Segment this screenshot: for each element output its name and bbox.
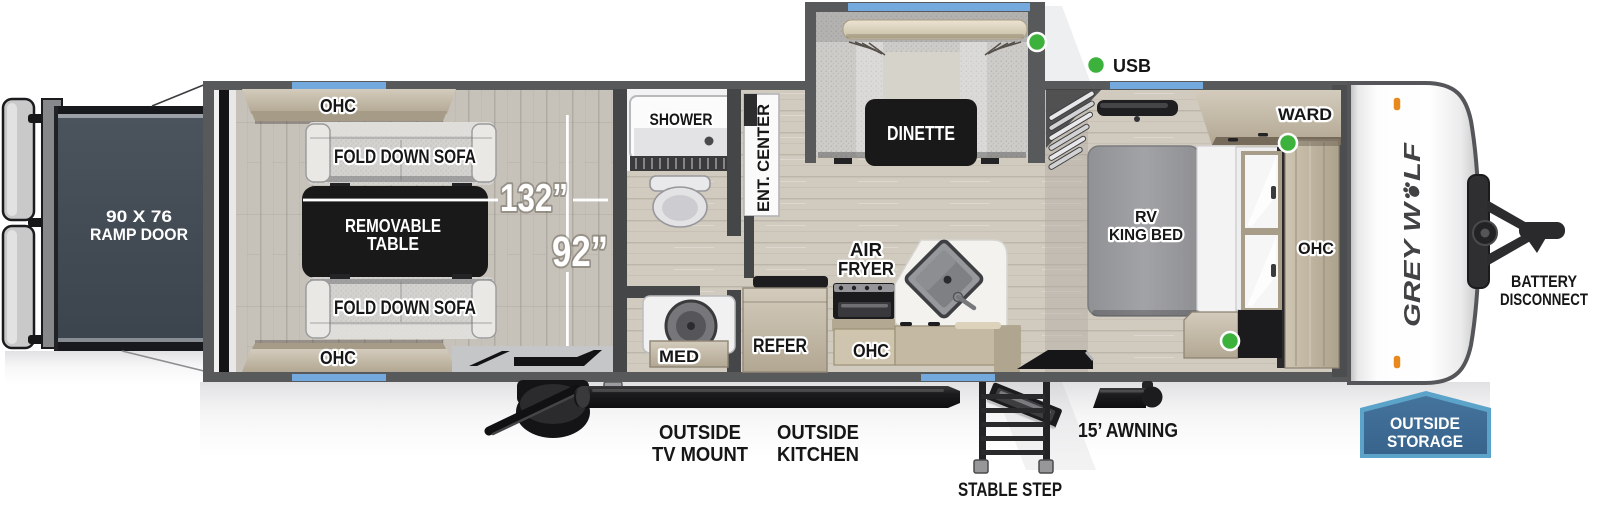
svg-text:FOLD DOWN SOFA: FOLD DOWN SOFA	[334, 298, 476, 319]
svg-text:FOLD DOWN SOFA: FOLD DOWN SOFA	[334, 147, 476, 168]
svg-text:GREY W: GREY W	[1399, 200, 1425, 327]
svg-text:OUTSIDE: OUTSIDE	[659, 422, 741, 444]
svg-text:MED: MED	[659, 347, 699, 366]
svg-text:92”: 92”	[552, 228, 608, 276]
svg-text:DINETTE: DINETTE	[887, 123, 955, 145]
svg-text:SHOWER: SHOWER	[650, 110, 713, 129]
svg-text:STABLE STEP: STABLE STEP	[958, 480, 1062, 501]
svg-text:TABLE: TABLE	[367, 234, 419, 254]
svg-text:LF: LF	[1399, 142, 1425, 181]
svg-text:132”: 132”	[500, 177, 568, 220]
svg-text:OHC: OHC	[320, 348, 356, 368]
svg-text:90 X 76: 90 X 76	[106, 207, 172, 226]
svg-text:OHC: OHC	[320, 96, 356, 116]
svg-text:DISCONNECT: DISCONNECT	[1500, 290, 1588, 309]
svg-text:OHC: OHC	[1298, 239, 1334, 258]
svg-text:AIR: AIR	[850, 240, 882, 260]
svg-text:FRYER: FRYER	[838, 259, 894, 279]
svg-text:ENT. CENTER: ENT. CENTER	[754, 104, 773, 212]
svg-text:KING BED: KING BED	[1109, 227, 1183, 244]
svg-text:BATTERY: BATTERY	[1511, 272, 1578, 291]
svg-text:OUTSIDE: OUTSIDE	[1390, 414, 1460, 433]
svg-text:RAMP DOOR: RAMP DOOR	[90, 225, 188, 244]
svg-text:REMOVABLE: REMOVABLE	[345, 216, 441, 236]
svg-text:OUTSIDE: OUTSIDE	[777, 422, 859, 444]
svg-text:OHC: OHC	[853, 341, 889, 361]
svg-text:STORAGE: STORAGE	[1387, 432, 1463, 451]
svg-text:15’ AWNING: 15’ AWNING	[1078, 420, 1178, 442]
svg-text:WARD: WARD	[1278, 105, 1332, 124]
svg-text:REFER: REFER	[753, 336, 807, 357]
svg-text:USB: USB	[1113, 56, 1151, 76]
svg-text:KITCHEN: KITCHEN	[777, 444, 859, 466]
svg-text:TV MOUNT: TV MOUNT	[652, 444, 748, 466]
svg-text:RV: RV	[1135, 209, 1157, 226]
